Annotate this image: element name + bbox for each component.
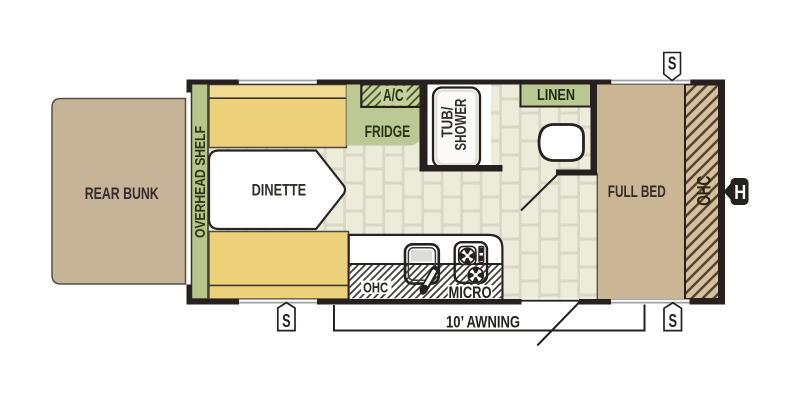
svg-text:S: S (669, 311, 678, 331)
svg-text:REAR BUNK: REAR BUNK (85, 184, 160, 203)
svg-text:OHC: OHC (363, 280, 388, 297)
svg-text:OHC: OHC (695, 176, 716, 206)
svg-text:A/C: A/C (383, 85, 404, 105)
svg-text:H: H (734, 182, 746, 204)
svg-text:S: S (282, 311, 291, 331)
svg-text:FRIDGE: FRIDGE (365, 123, 411, 141)
svg-text:LINEN: LINEN (537, 87, 575, 104)
svg-text:FULL BED: FULL BED (608, 182, 666, 201)
svg-text:10’ AWNING: 10’ AWNING (446, 313, 520, 331)
svg-text:SHOWER: SHOWER (453, 99, 470, 151)
svg-text:DINETTE: DINETTE (252, 182, 307, 200)
svg-text:S: S (668, 54, 677, 74)
svg-text:OVERHEAD SHELF: OVERHEAD SHELF (192, 126, 209, 238)
